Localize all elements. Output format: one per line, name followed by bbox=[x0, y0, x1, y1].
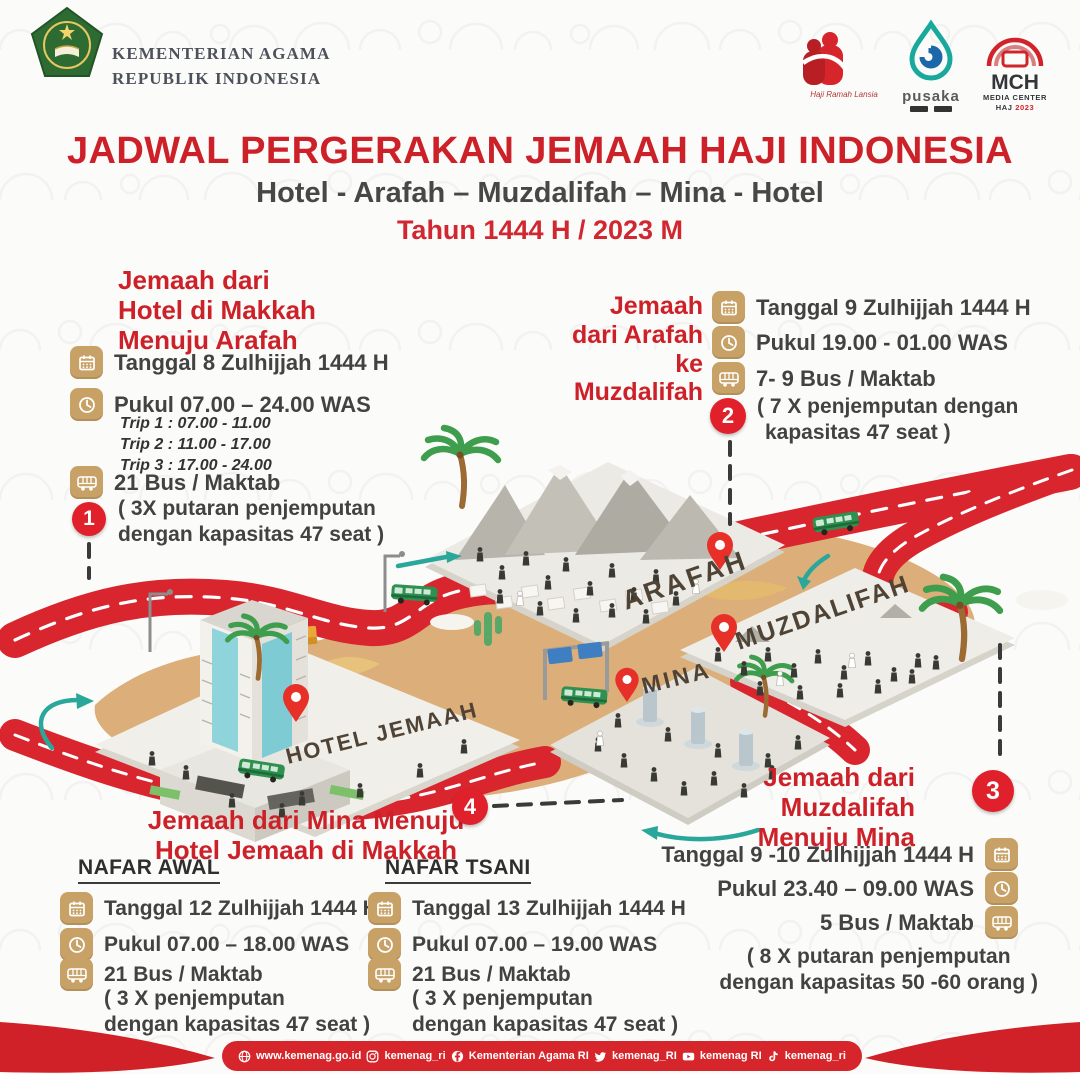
palm-tree bbox=[424, 428, 498, 506]
nafar-awal-bus: 21 Bus / Maktab bbox=[104, 963, 263, 987]
nafar-awal-date-row: Tanggal 12 Zulhijjah 1444 H bbox=[60, 892, 378, 925]
ground-patch bbox=[430, 614, 474, 630]
road-hotel-arafah bbox=[15, 543, 690, 640]
nafar-awal-time: Pukul 07.00 – 18.00 WAS bbox=[104, 933, 349, 957]
mch-haj-year: HAJ 2023 bbox=[975, 103, 1055, 112]
cactus bbox=[474, 612, 502, 646]
road-muzdalifah bbox=[877, 470, 1072, 617]
muzdalifah-rock bbox=[735, 626, 770, 642]
route-step-badge-3: 3 bbox=[972, 770, 1014, 812]
footer-facebook[interactable]: Kementerian Agama RI bbox=[451, 1050, 589, 1063]
section1-date-row: Tanggal 8 Zulhijjah 1444 H bbox=[70, 346, 389, 379]
section1-date: Tanggal 8 Zulhijjah 1444 H bbox=[114, 350, 389, 376]
ministry-line1: KEMENTERIAN AGAMA bbox=[112, 42, 330, 67]
map-label-arafah: ARAFAH bbox=[618, 545, 751, 616]
nafar-awal-note: ( 3 X penjemputan dengan kapasitas 47 se… bbox=[104, 986, 370, 1038]
footer-instagram[interactable]: kemenag_ri bbox=[366, 1050, 445, 1063]
map-label-mina: MINA bbox=[639, 657, 714, 699]
section1-title: Jemaah dari Hotel di Makkah Menuju Arafa… bbox=[118, 266, 316, 356]
ground-patch bbox=[1016, 590, 1068, 610]
poster-subtitle: Hotel - Arafah – Muzdalifah – Mina - Hot… bbox=[0, 177, 1080, 210]
arafah-platform bbox=[425, 462, 785, 652]
jamarat-pillars bbox=[636, 685, 760, 771]
nafar-tsani-note: ( 3 X penjemputan dengan kapasitas 47 se… bbox=[412, 986, 678, 1038]
footer-website[interactable]: www.kemenag.go.id bbox=[238, 1050, 361, 1063]
gold-tent bbox=[290, 626, 317, 646]
palm-tree bbox=[737, 657, 793, 716]
nafar-tsani-date: Tanggal 13 Zulhijjah 1444 H bbox=[412, 897, 686, 921]
footer-social-bar: www.kemenag.go.id kemenag_ri Kementerian… bbox=[222, 1041, 862, 1071]
pusaka-social-tag bbox=[910, 106, 928, 112]
nafar-tsani-header: NAFAR TSANI bbox=[385, 856, 531, 884]
nafar-tsani-time: Pukul 07.00 – 19.00 WAS bbox=[412, 933, 657, 957]
section3-bus: 5 Bus / Maktab bbox=[820, 910, 974, 936]
section2-time: Pukul 19.00 - 01.00 WAS bbox=[756, 330, 1008, 356]
route-step-badge-4: 4 bbox=[452, 789, 488, 825]
instagram-icon bbox=[366, 1050, 379, 1063]
muzdalifah-platform bbox=[680, 568, 1015, 727]
map-label-hotel: HOTEL JEMAAH bbox=[283, 697, 480, 769]
muzdalifah-rock bbox=[880, 604, 912, 618]
bus bbox=[812, 511, 860, 537]
palm-tree bbox=[922, 577, 1000, 659]
arafah-tents bbox=[469, 584, 668, 614]
pusaka-label: pusaka bbox=[898, 88, 964, 105]
bus-icon bbox=[985, 906, 1018, 939]
map-label-muzdalifah: MUZDALIFAH bbox=[732, 570, 914, 656]
mch-year: 2023 bbox=[1015, 103, 1034, 112]
globe-icon bbox=[238, 1050, 251, 1063]
sand-dune bbox=[700, 581, 788, 600]
section1-note: ( 3X putaran penjemputan dengan kapasita… bbox=[118, 496, 384, 548]
mch-label: MCH bbox=[975, 72, 1055, 93]
pusaka-logo bbox=[912, 24, 950, 78]
poster-title: JADWAL PERGERAKAN JEMAAH HAJI INDONESIA bbox=[0, 130, 1080, 173]
calendar-icon bbox=[60, 892, 93, 925]
poster-year: Tahun 1444 H / 2023 M bbox=[0, 215, 1080, 246]
ground-patch bbox=[322, 713, 374, 731]
hotel-pin bbox=[283, 684, 309, 722]
bus-icon bbox=[60, 958, 93, 991]
mch-logo bbox=[989, 40, 1041, 66]
gold-tent bbox=[610, 610, 630, 625]
nafar-tsani-bus: 21 Bus / Maktab bbox=[412, 963, 571, 987]
section3-bus-row: 5 Bus / Maktab bbox=[820, 906, 1018, 939]
nafar-tsani-date-row: Tanggal 13 Zulhijjah 1444 H bbox=[368, 892, 686, 925]
haji-ramah-lansia-logo bbox=[803, 32, 846, 85]
bus-icon bbox=[368, 958, 401, 991]
tiktok-icon bbox=[767, 1050, 780, 1063]
section2-title: Jemaah dari Arafah ke Muzdalifah bbox=[555, 292, 703, 407]
section2-time-row: Pukul 19.00 - 01.00 WAS bbox=[712, 326, 1008, 359]
clock-icon bbox=[70, 388, 103, 421]
clock-icon bbox=[368, 928, 401, 961]
youtube-icon bbox=[682, 1050, 695, 1063]
calendar-icon bbox=[712, 291, 745, 324]
section3-time-row: Pukul 23.40 – 09.00 WAS bbox=[717, 872, 1018, 905]
section3-time: Pukul 23.40 – 09.00 WAS bbox=[717, 876, 974, 902]
route-step-badge-2: 2 bbox=[710, 398, 746, 434]
road-mina-muzdalifah bbox=[745, 682, 855, 750]
muzdalifah-pin bbox=[711, 614, 737, 652]
bus bbox=[560, 686, 607, 709]
street-lamp bbox=[150, 551, 405, 652]
nafar-tsani-time-row: Pukul 07.00 – 19.00 WAS bbox=[368, 928, 657, 961]
clock-icon bbox=[60, 928, 93, 961]
section3-date: Tanggal 9 -10 Zulhijjah 1444 H bbox=[661, 842, 974, 868]
mch-tagline: MEDIA CENTER bbox=[975, 93, 1055, 102]
bus bbox=[391, 584, 438, 606]
nafar-awal-header: NAFAR AWAL bbox=[78, 856, 220, 884]
clock-icon bbox=[985, 872, 1018, 905]
kemenag-logo bbox=[32, 8, 102, 76]
section2-note: ( 7 X penjemputan dengan kapasitas 47 se… bbox=[757, 394, 1018, 446]
infographic-poster: KEMENTERIAN AGAMA REPUBLIK INDONESIA Haj… bbox=[0, 0, 1080, 1074]
section2-date: Tanggal 9 Zulhijjah 1444 H bbox=[756, 295, 1031, 321]
sand-ground bbox=[95, 527, 975, 800]
pusaka-social-tag bbox=[934, 106, 952, 112]
pilgrim-figures-white bbox=[517, 579, 856, 745]
nafar-awal-time-row: Pukul 07.00 – 18.00 WAS bbox=[60, 928, 349, 961]
arafah-pin bbox=[707, 532, 733, 570]
footer-youtube[interactable]: kemenag RI bbox=[682, 1050, 762, 1063]
route-step-badge-1: 1 bbox=[72, 502, 106, 536]
arafah-mountain bbox=[455, 465, 740, 560]
bus-icon bbox=[712, 362, 745, 395]
ground-patch bbox=[582, 567, 642, 589]
section3-note: ( 8 X putaran penjemputan dengan kapasit… bbox=[719, 944, 1038, 996]
section2-date-row: Tanggal 9 Zulhijjah 1444 H bbox=[712, 291, 1031, 324]
nafar-awal-date: Tanggal 12 Zulhijjah 1444 H bbox=[104, 897, 378, 921]
facebook-icon bbox=[451, 1050, 464, 1063]
section1-bus-row: 21 Bus / Maktab bbox=[70, 466, 280, 499]
calendar-icon bbox=[70, 346, 103, 379]
mina-gate bbox=[543, 642, 609, 700]
footer-twitter[interactable]: kemenag_RI bbox=[594, 1050, 677, 1063]
footer-tiktok[interactable]: kemenag_ri bbox=[767, 1050, 846, 1063]
calendar-icon bbox=[985, 838, 1018, 871]
mina-pin bbox=[615, 668, 638, 702]
mch-haj: HAJ bbox=[996, 103, 1013, 112]
section1-bus: 21 Bus / Maktab bbox=[114, 470, 280, 496]
bus bbox=[237, 758, 285, 784]
ministry-name: KEMENTERIAN AGAMA REPUBLIK INDONESIA bbox=[112, 42, 330, 91]
sand-dune bbox=[315, 657, 380, 676]
palm-tree bbox=[228, 616, 287, 678]
twitter-icon bbox=[594, 1050, 607, 1063]
bus-icon bbox=[70, 466, 103, 499]
cactus bbox=[590, 588, 610, 612]
road-arafah-right bbox=[735, 472, 1070, 540]
section2-bus-row: 7- 9 Bus / Maktab bbox=[712, 362, 936, 395]
ministry-line2: REPUBLIK INDONESIA bbox=[112, 67, 330, 92]
clock-icon bbox=[712, 326, 745, 359]
lansia-caption: Haji Ramah Lansia bbox=[796, 90, 892, 99]
calendar-icon bbox=[368, 892, 401, 925]
section3-date-row: Tanggal 9 -10 Zulhijjah 1444 H bbox=[661, 838, 1018, 871]
section2-bus: 7- 9 Bus / Maktab bbox=[756, 366, 936, 392]
